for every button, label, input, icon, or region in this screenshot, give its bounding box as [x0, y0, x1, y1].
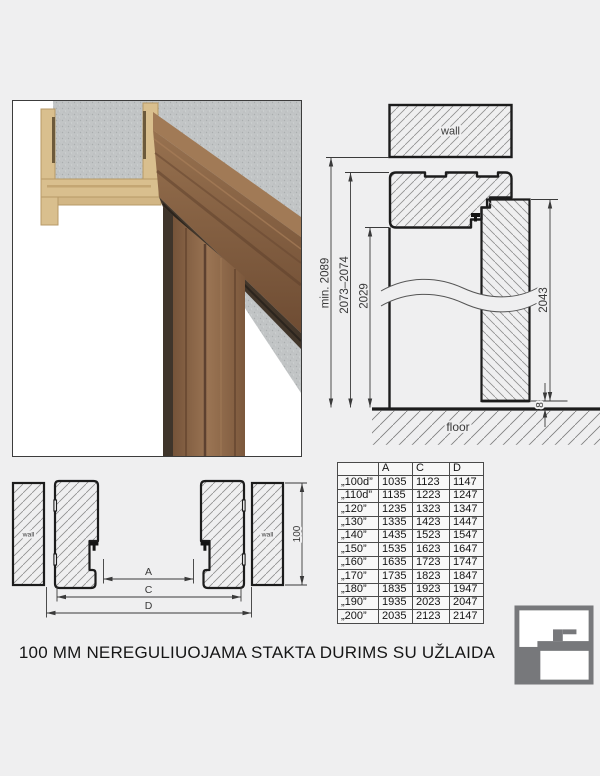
value-cell: 1747: [450, 556, 484, 569]
dim-depth-label: 100: [292, 525, 303, 542]
left-dimension-lines: [326, 158, 389, 408]
value-cell: 2147: [450, 610, 484, 623]
jamb-profile-right: [201, 481, 246, 588]
value-cell: 1335: [379, 516, 413, 529]
horizontal-section-diagram: wall wall A C D 100: [5, 475, 315, 625]
value-cell: 2123: [413, 610, 450, 623]
value-cell: 2023: [413, 596, 450, 609]
frame-corner-illustration: [13, 101, 301, 456]
wall-label: wall: [440, 126, 460, 138]
size-cell: „120”: [338, 503, 379, 516]
dim-frame-height: 2073–2074: [339, 256, 351, 314]
value-cell: 1447: [450, 516, 484, 529]
size-cell: „160”: [338, 556, 379, 569]
size-cell: „140”: [338, 529, 379, 542]
value-cell: 1847: [450, 570, 484, 583]
table-row: „170”173518231847: [338, 570, 484, 583]
table-row: „110d”113512231247: [338, 489, 484, 502]
size-cell: „130”: [338, 516, 379, 529]
size-cell: „110d”: [338, 489, 379, 502]
value-cell: 1547: [450, 529, 484, 542]
table-row: „160”163517231747: [338, 556, 484, 569]
table-row: „190”193520232047: [338, 596, 484, 609]
header-c: C: [413, 463, 450, 476]
dim-opening-height: 2029: [359, 283, 371, 309]
value-cell: 1323: [413, 503, 450, 516]
dim-d-label: D: [145, 600, 153, 612]
jamb-profile-left: [54, 481, 99, 588]
size-cell: „100d”: [338, 476, 379, 489]
dim-total-height: min. 2089: [320, 258, 332, 309]
table-row: „140”143515231547: [338, 529, 484, 542]
table-row: „130”133514231447: [338, 516, 484, 529]
header-a: A: [379, 463, 413, 476]
value-cell: 1347: [450, 503, 484, 516]
spec-sheet: wall floor min. 2089: [0, 0, 600, 776]
value-cell: 1835: [379, 583, 413, 596]
header-d: D: [450, 463, 484, 476]
dim-door-height: 2043: [538, 287, 550, 313]
size-table: A C D „100d”103511231147„110d”1135122312…: [337, 462, 484, 624]
size-cell: „170”: [338, 570, 379, 583]
wall-right-label: wall: [261, 532, 274, 539]
dim-a-label: A: [145, 566, 152, 578]
wall-left-label: wall: [22, 532, 35, 539]
page-title: 100 MM NEREGULIUOJAMA STAKTA DURIMS SU U…: [8, 643, 506, 663]
value-cell: 2047: [450, 596, 484, 609]
value-cell: 1123: [413, 476, 450, 489]
size-cell: „180”: [338, 583, 379, 596]
table-row: „120”123513231347: [338, 503, 484, 516]
frame-corner-photo: [12, 100, 302, 457]
dim-c-label: C: [145, 584, 153, 596]
value-cell: 1147: [450, 476, 484, 489]
value-cell: 1035: [379, 476, 413, 489]
vertical-section-diagram: wall floor min. 2089: [315, 100, 600, 455]
dim-floor-gap: 8: [535, 402, 546, 408]
value-cell: 1135: [379, 489, 413, 502]
floor-label: floor: [446, 420, 469, 434]
size-cell: „190”: [338, 596, 379, 609]
floor-hatch: [372, 411, 600, 445]
value-cell: 1435: [379, 529, 413, 542]
value-cell: 1923: [413, 583, 450, 596]
table-row: „100d”103511231147: [338, 476, 484, 489]
size-cell: „200”: [338, 610, 379, 623]
brand-logo: [514, 605, 594, 685]
value-cell: 1423: [413, 516, 450, 529]
value-cell: 1947: [450, 583, 484, 596]
value-cell: 1735: [379, 570, 413, 583]
value-cell: 1647: [450, 543, 484, 556]
value-cell: 1623: [413, 543, 450, 556]
size-cell: „150”: [338, 543, 379, 556]
header-size: [338, 463, 379, 476]
value-cell: 1935: [379, 596, 413, 609]
table-row: „180”183519231947: [338, 583, 484, 596]
value-cell: 1823: [413, 570, 450, 583]
table-header-row: A C D: [338, 463, 484, 476]
value-cell: 1723: [413, 556, 450, 569]
value-cell: 1235: [379, 503, 413, 516]
seal-groove-jamb: [163, 207, 173, 456]
value-cell: 1535: [379, 543, 413, 556]
value-cell: 1223: [413, 489, 450, 502]
value-cell: 1523: [413, 529, 450, 542]
value-cell: 2035: [379, 610, 413, 623]
value-cell: 1635: [379, 556, 413, 569]
table-row: „150”153516231647: [338, 543, 484, 556]
value-cell: 1247: [450, 489, 484, 502]
table-row: „200”203521232147: [338, 610, 484, 623]
size-table-body: „100d”103511231147„110d”113512231247„120…: [338, 476, 484, 623]
